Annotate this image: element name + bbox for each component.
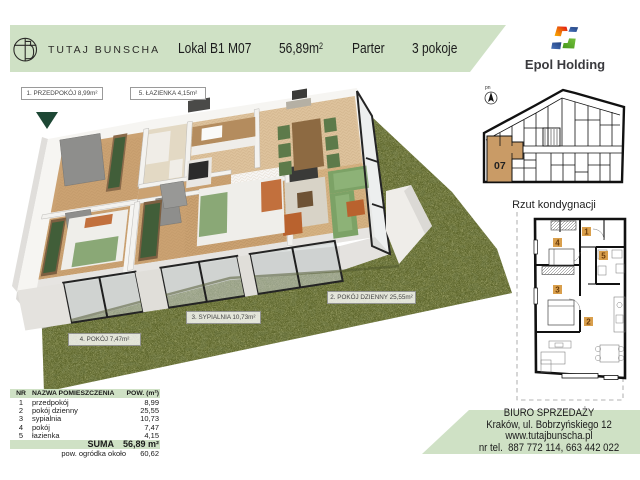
svg-text:2: 2 bbox=[586, 318, 591, 327]
svg-text:pn: pn bbox=[485, 85, 491, 91]
svg-text:07: 07 bbox=[494, 160, 506, 172]
svg-text:5: 5 bbox=[601, 252, 606, 261]
svg-text:3: 3 bbox=[555, 286, 560, 295]
svg-text:1: 1 bbox=[584, 228, 589, 237]
svg-text:4: 4 bbox=[555, 239, 560, 248]
